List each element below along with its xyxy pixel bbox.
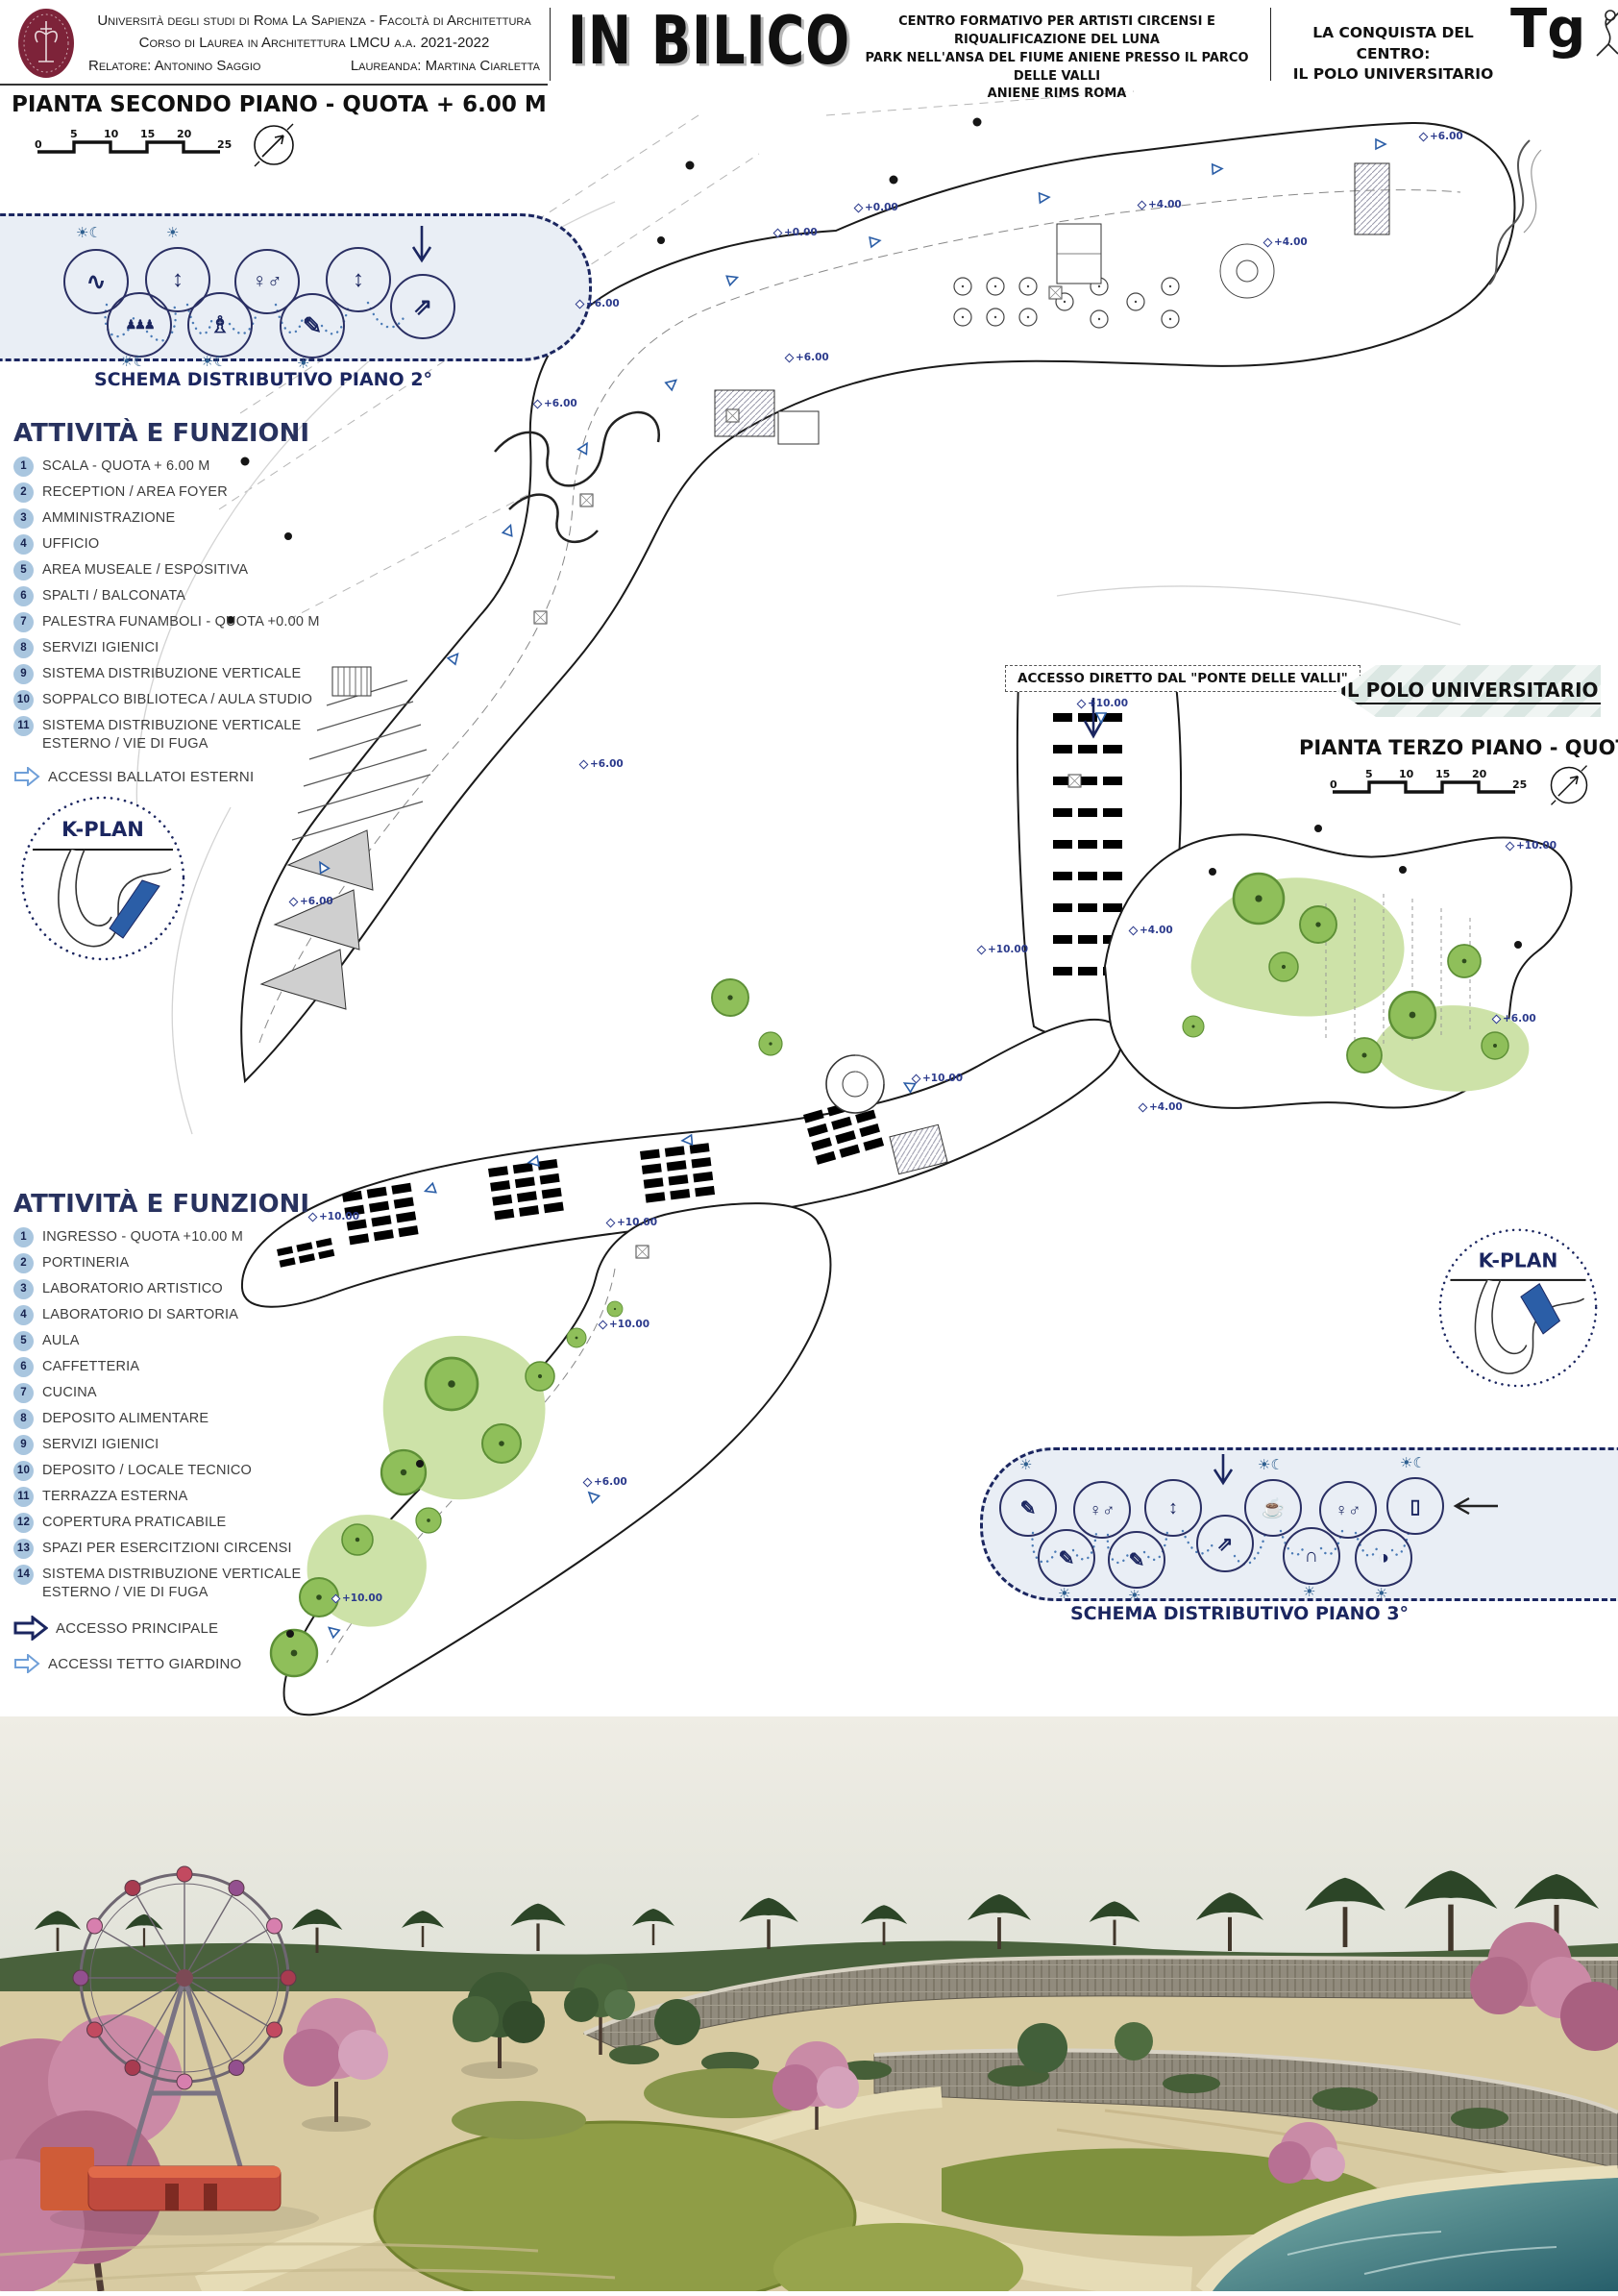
header-rule (0, 84, 548, 86)
item-label: AREA MUSEALE / ESPOSITIVA (42, 561, 248, 580)
elevation-label: +0.00 (855, 202, 898, 213)
banner-label: IL POLO UNIVERSITARIO (1337, 679, 1600, 704)
item-number: 8 (13, 1409, 34, 1429)
item-number: 11 (13, 1487, 34, 1507)
item-number: 7 (13, 1383, 34, 1403)
item-label: SOPPALCO BIBLIOTECA / AULA STUDIO (42, 691, 312, 709)
elevation-label: +6.00 (580, 758, 624, 770)
list-item: 4LABORATORIO DI SARTORIA (13, 1306, 336, 1325)
activities-list-piano2: ATTIVITÀ E FUNZIONI 1SCALA - QUOTA + 6.0… (13, 419, 336, 786)
item-label: SISTEMA DISTRIBUZIONE VERTICALE ESTERNO … (42, 1566, 336, 1602)
item-label: SISTEMA DISTRIBUZIONE VERTICALE (42, 665, 301, 683)
elevation-label: +0.00 (774, 227, 818, 238)
item-label: SCALA - QUOTA + 6.00 M (42, 457, 210, 476)
list-item: 11SISTEMA DISTRIBUZIONE VERTICALE ESTERN… (13, 717, 336, 753)
wc-icon: ♀♂ (1319, 1481, 1377, 1539)
list-item: 7PALESTRA FUNAMBOLI - QUOTA +0.00 M (13, 613, 336, 632)
item-label: TERRAZZA ESTERNA (42, 1488, 187, 1506)
sun-icon: ☀ (1058, 1585, 1070, 1602)
item-number: 1 (13, 1227, 34, 1247)
notebook-glyph: ✎ (1059, 1546, 1075, 1570)
item-label: AMMINISTRAZIONE (42, 509, 175, 528)
list-item: 3LABORATORIO ARTISTICO (13, 1280, 336, 1299)
elevation-label: +6.00 (576, 298, 620, 309)
item-number: 8 (13, 638, 34, 658)
polo-universitario-banner: IL POLO UNIVERSITARIO (1337, 665, 1601, 717)
door-icon: ▯ (1386, 1477, 1444, 1535)
acrobat-figure-icon (1585, 0, 1618, 75)
svg-text:10: 10 (1399, 769, 1414, 780)
notebook-glyph: ✎ (1129, 1548, 1145, 1572)
svg-text:5: 5 (70, 129, 78, 140)
subtitle-line2: PARK NELL'ANSA DEL FIUME ANIENE PRESSO I… (861, 50, 1253, 86)
document-glyph: ✎ (303, 312, 322, 340)
list-item: 8SERVIZI IGIENICI (13, 639, 336, 658)
elevator-icon-2: ↕ (326, 247, 391, 312)
item-number: 4 (13, 1305, 34, 1325)
tg-logo: Tg (1510, 0, 1618, 75)
stairs-glyph: ⇗ (413, 293, 432, 321)
outline-arrow-icon (13, 1654, 40, 1673)
elevation-label: +10.00 (913, 1073, 963, 1084)
plan3-title: PIANTA TERZO PIANO - QUOTA + 10.00 M (1299, 736, 1603, 759)
item-label: CAFFETTERIA (42, 1358, 139, 1376)
svg-text:K-PLAN: K-PLAN (61, 818, 144, 841)
item-label: CUCINA (42, 1384, 97, 1402)
item-number: 10 (13, 1461, 34, 1481)
item-label: LABORATORIO ARTISTICO (42, 1280, 223, 1298)
item-number: 7 (13, 612, 34, 632)
elevation-label: +6.00 (290, 896, 333, 907)
sun-icon: ☀ (166, 224, 179, 241)
list-item: 9SISTEMA DISTRIBUZIONE VERTICALE (13, 665, 336, 684)
sun-icon: ☀ (1019, 1456, 1032, 1473)
elevation-label: +10.00 (1078, 698, 1128, 709)
notebook-icon: ✎ (1108, 1531, 1165, 1589)
subtitle-line1: CENTRO FORMATIVO PER ARTISTI CIRCENSI E … (861, 13, 1253, 50)
item-number: 3 (13, 508, 34, 529)
list-item: 6SPALTI / BALCONATA (13, 587, 336, 606)
sun-moon-icon: ☀☾ (1400, 1454, 1426, 1471)
main-access-arrow-icon (13, 1616, 48, 1641)
svg-text:25: 25 (217, 138, 232, 151)
notebook-glyph: ✎ (1020, 1496, 1037, 1520)
svg-text:5: 5 (1365, 769, 1373, 780)
item-number: 4 (13, 534, 34, 555)
wc-glyph: ♀♂ (1336, 1500, 1361, 1520)
svg-text:15: 15 (1435, 769, 1450, 780)
item-number: 9 (13, 664, 34, 684)
item-number: 1 (13, 457, 34, 477)
item-number: 12 (13, 1513, 34, 1533)
schema-piano2-caption: SCHEMA DISTRIBUTIVO PIANO 2° (90, 369, 436, 390)
item-label: LABORATORIO DI SARTORIA (42, 1306, 238, 1324)
sun-moon-icon: ☀☾ (201, 353, 227, 370)
item-label: SPAZI PER ESERCITZIONI CIRCENSI (42, 1540, 292, 1558)
item-number: 3 (13, 1279, 34, 1299)
schema2-entry-arrow (410, 224, 433, 272)
list-item: 10SOPPALCO BIBLIOTECA / AULA STUDIO (13, 691, 336, 710)
elevation-label: +4.00 (1264, 236, 1308, 248)
project-title: IN BILICO (565, 2, 853, 80)
activities-title: ATTIVITÀ E FUNZIONI (13, 419, 336, 448)
item-label: SPALTI / BALCONATA (42, 587, 185, 605)
list-item: 1SCALA - QUOTA + 6.00 M (13, 457, 336, 477)
svg-text:0: 0 (35, 138, 42, 151)
hanger-glyph: ∩ (1305, 1545, 1318, 1568)
schema-piano3-box: ✎ ✎ ♀♂ ✎ ↕ ⇗ ☕ ∩ ♀♂ ◑ ▯ ☀ ☀ ☀ ☀☾ ☀ ☀ ☀☾ (980, 1447, 1618, 1601)
item-label: COPERTURA PRATICABILE (42, 1514, 226, 1532)
outline-arrow-icon (13, 767, 40, 786)
item-number: 9 (13, 1435, 34, 1455)
subtitle-line3: ANIENE RIMS ROMA (861, 86, 1253, 104)
legend-label: ACCESSI BALLATOI ESTERNI (48, 769, 254, 785)
university-line2: Corso di Laurea in Architettura LMCU a.a… (88, 32, 540, 54)
elevation-label: +6.00 (1420, 131, 1463, 142)
item-label: SERVIZI IGIENICI (42, 1436, 159, 1454)
item-number: 11 (13, 716, 34, 736)
elevation-label: +4.00 (1140, 1101, 1183, 1113)
schema-piano3-caption: SCHEMA DISTRIBUTIVO PIANO 3° (1066, 1603, 1412, 1624)
item-label: DEPOSITO ALIMENTARE (42, 1410, 208, 1428)
statue-glyph: ♗ (209, 311, 231, 339)
stairs-icon: ⇗ (1196, 1515, 1254, 1572)
schema-piano2-box: ∿ ♟♟♟ ↕ ♗ ♀♂ ✎ ↕ ⇗ ☀☾ ☀☾ ☀ ☀☾ ☀ (0, 213, 592, 361)
item-label: UFFICIO (42, 535, 99, 554)
project-subtitle: CENTRO FORMATIVO PER ARTISTI CIRCENSI E … (861, 13, 1253, 104)
elevation-label: +10.00 (600, 1319, 650, 1330)
exterior-render (0, 1716, 1618, 2291)
item-number: 14 (13, 1565, 34, 1585)
plan3-scale-bar: 05 1015 2025 (1328, 769, 1539, 798)
access-note: ACCESSO DIRETTO DAL "PONTE DELLE VALLI" (1005, 665, 1361, 692)
header-divider-right (1270, 8, 1271, 81)
sun-moon-icon: ☀☾ (1258, 1456, 1284, 1473)
elevator-glyph: ↕ (353, 266, 364, 293)
sun-moon-icon: ☀☾ (76, 224, 102, 241)
elevator-icon: ↕ (1144, 1479, 1202, 1537)
plan2-scale-bar: 05 1015 2025 (33, 129, 244, 158)
sun-moon-icon: ☀☾ (120, 353, 146, 370)
kplan-piano2: K-PLAN (17, 786, 188, 963)
item-number: 2 (13, 1253, 34, 1273)
list-item: 4UFFICIO (13, 535, 336, 555)
list-item: 5AULA (13, 1332, 336, 1351)
elevation-label: +10.00 (332, 1592, 382, 1604)
item-label: AULA (42, 1332, 80, 1350)
elevation-label: +6.00 (786, 352, 829, 363)
door-glyph: ▯ (1410, 1494, 1420, 1518)
plan3-north-compass-icon (1545, 761, 1593, 809)
list-item: 10DEPOSITO / LOCALE TECNICO (13, 1462, 336, 1481)
item-number: 5 (13, 560, 34, 580)
elevator-glyph: ↕ (172, 266, 184, 293)
wc-glyph: ♀♂ (252, 270, 282, 293)
svg-text:25: 25 (1512, 778, 1527, 791)
item-label: RECEPTION / AREA FOYER (42, 483, 228, 502)
elevation-label: +6.00 (1493, 1013, 1536, 1025)
notebook-icon: ✎ (999, 1479, 1057, 1537)
palette-icon: ◑ (1355, 1529, 1412, 1587)
elevation-label: +4.00 (1139, 199, 1182, 210)
laureanda: Laureanda: Martina Ciarletta (351, 55, 540, 77)
svg-text:10: 10 (104, 129, 119, 140)
item-label: SISTEMA DISTRIBUZIONE VERTICALE ESTERNO … (42, 717, 336, 753)
board-section-label: LA CONQUISTA DEL CENTRO: IL POLO UNIVERS… (1280, 23, 1507, 86)
audience-glyph: ♟♟♟ (126, 317, 154, 333)
activities-title: ATTIVITÀ E FUNZIONI (13, 1190, 336, 1219)
section-label-line2: IL POLO UNIVERSITARIO (1280, 64, 1507, 86)
item-number: 5 (13, 1331, 34, 1351)
kplan-piano3: K-PLAN (1435, 1219, 1601, 1390)
relatore: Relatore: Antonino Saggio (88, 55, 260, 77)
legend-accesso-principale: ACCESSO PRINCIPALE (13, 1616, 336, 1641)
item-number: 6 (13, 1357, 34, 1377)
item-label: PALESTRA FUNAMBOLI - QUOTA +0.00 M (42, 613, 320, 631)
elevation-label: +6.00 (534, 398, 577, 409)
elevation-label: +10.00 (1507, 840, 1557, 852)
legend-label: ACCESSI TETTO GIARDINO (48, 1656, 241, 1672)
svg-text:0: 0 (1330, 778, 1337, 791)
legend-accessi-tetto: ACCESSI TETTO GIARDINO (13, 1654, 336, 1673)
list-item: 12COPERTURA PRATICABILE (13, 1514, 336, 1533)
university-block: Università degli studi di Roma La Sapien… (88, 10, 540, 77)
item-number: 2 (13, 482, 34, 503)
list-item: 1INGRESSO - QUOTA +10.00 M (13, 1228, 336, 1247)
item-number: 6 (13, 586, 34, 606)
list-item: 7CUCINA (13, 1384, 336, 1403)
coffee-icon: ☕ (1244, 1479, 1302, 1537)
sun-icon: ☀ (1375, 1585, 1387, 1602)
hanger-icon: ∩ (1283, 1527, 1340, 1585)
header: Università degli studi di Roma La Sapien… (0, 0, 1618, 88)
list-item: 3AMMINISTRAZIONE (13, 509, 336, 529)
header-divider-left (550, 8, 551, 81)
item-label: DEPOSITO / LOCALE TECNICO (42, 1462, 252, 1480)
plan2-title: PIANTA SECONDO PIANO - QUOTA + 6.00 M (12, 92, 547, 117)
section-label-line1: LA CONQUISTA DEL CENTRO: (1280, 23, 1507, 64)
list-item: 14SISTEMA DISTRIBUZIONE VERTICALE ESTERN… (13, 1566, 336, 1602)
list-item: 2PORTINERIA (13, 1254, 336, 1273)
svg-text:20: 20 (1472, 769, 1487, 780)
coffee-glyph: ☕ (1262, 1496, 1286, 1520)
item-label: INGRESSO - QUOTA +10.00 M (42, 1228, 243, 1247)
elevator-glyph: ↕ (1168, 1497, 1178, 1519)
legend-ballatoi: ACCESSI BALLATOI ESTERNI (13, 767, 336, 786)
item-number: 10 (13, 690, 34, 710)
item-label: PORTINERIA (42, 1254, 129, 1272)
notebook-icon: ✎ (1038, 1529, 1095, 1587)
plan2-north-compass-icon (248, 119, 300, 171)
activities-list-piano3: ATTIVITÀ E FUNZIONI 1INGRESSO - QUOTA +1… (13, 1190, 336, 1673)
svg-text:20: 20 (177, 129, 192, 140)
sun-icon: ☀ (1303, 1583, 1315, 1600)
item-label: SERVIZI IGIENICI (42, 639, 159, 657)
legend-label: ACCESSO PRINCIPALE (56, 1620, 218, 1637)
schema3-door-arrow (1450, 1496, 1500, 1516)
render-illustration (0, 1716, 1618, 2291)
hammock-glyph: ∿ (86, 268, 106, 296)
palette-glyph: ◑ (1378, 1547, 1389, 1569)
svg-text:K-PLAN: K-PLAN (1479, 1248, 1558, 1271)
sun-icon: ☀ (1128, 1587, 1140, 1604)
elevation-label: +10.00 (607, 1217, 657, 1228)
stairs-glyph: ⇗ (1217, 1532, 1234, 1556)
item-number: 13 (13, 1539, 34, 1559)
wc-icon: ♀♂ (1073, 1481, 1131, 1539)
elevation-label: +4.00 (1130, 925, 1173, 936)
tg-logo-text: Tg (1510, 0, 1585, 60)
list-item: 9SERVIZI IGIENICI (13, 1436, 336, 1455)
list-item: 6CAFFETTERIA (13, 1358, 336, 1377)
list-item: 8DEPOSITO ALIMENTARE (13, 1410, 336, 1429)
schema3-entry-arrow (1212, 1452, 1235, 1494)
list-item: 11TERRAZZA ESTERNA (13, 1488, 336, 1507)
elevation-label: +6.00 (584, 1476, 627, 1488)
list-item: 5AREA MUSEALE / ESPOSITIVA (13, 561, 336, 580)
elevation-label: +10.00 (978, 944, 1028, 955)
university-line1: Università degli studi di Roma La Sapien… (88, 10, 540, 32)
list-item: 2RECEPTION / AREA FOYER (13, 483, 336, 503)
stairs-icon: ⇗ (390, 274, 455, 339)
sapienza-logo (15, 6, 77, 81)
list-item: 13SPAZI PER ESERCITZIONI CIRCENSI (13, 1540, 336, 1559)
wc-glyph: ♀♂ (1090, 1500, 1115, 1520)
svg-text:15: 15 (140, 129, 155, 140)
